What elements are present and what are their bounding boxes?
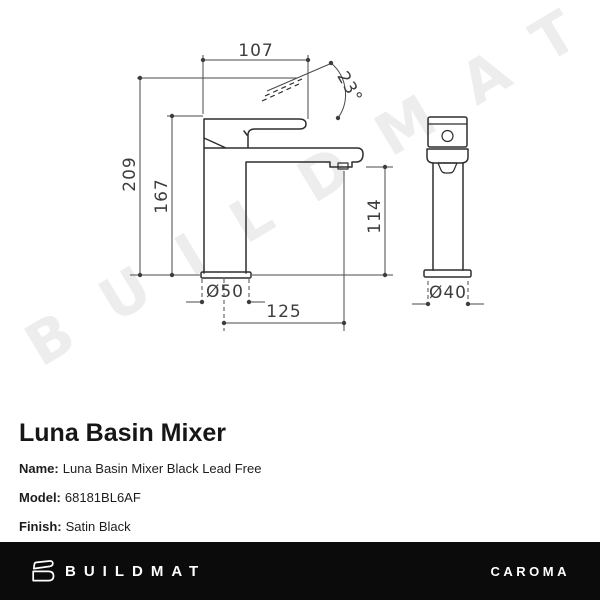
name-label: Name: [19, 461, 59, 476]
buildmat-b-icon [31, 559, 57, 583]
buildmat-wordmark: BUILDMAT [65, 563, 206, 580]
aerator [338, 163, 348, 169]
handle-button [442, 131, 453, 142]
column-side [433, 163, 463, 270]
dim-body-height: 167 [152, 178, 172, 213]
dim-spout-reach: 125 [266, 302, 301, 322]
finish-value: Satin Black [66, 519, 131, 534]
base-flange-front [201, 272, 251, 278]
name-value: Luna Basin Mixer Black Lead Free [63, 461, 262, 476]
caroma-wordmark: CAROMA [491, 564, 571, 579]
faucet-front-view [201, 119, 363, 278]
base-flange-side [424, 270, 471, 277]
dimension-lines: 107 23° 209 167 114 125 [120, 41, 484, 331]
model-value: 68181BL6AF [65, 490, 141, 505]
dim-base-diameter-front: Ø50 [206, 282, 244, 302]
spout-nose-side [438, 163, 457, 173]
dim-total-height: 209 [120, 156, 140, 191]
dim-handle-angle: 23° [332, 68, 366, 107]
buildmat-logo: BUILDMAT [31, 559, 206, 583]
faucet-front-outline [204, 119, 363, 273]
spec-sheet: BUILDMAT 107 [0, 0, 600, 600]
model-label: Model: [19, 490, 61, 505]
page-title: Luna Basin Mixer [19, 419, 261, 448]
handle-head-side [428, 117, 467, 147]
dim-outlet-height: 114 [365, 198, 385, 233]
product-finish-row: Finish:Satin Black [19, 519, 261, 534]
finish-label: Finish: [19, 519, 62, 534]
dim-handle-width: 107 [238, 41, 273, 61]
product-model-row: Model:68181BL6AF [19, 490, 261, 505]
faucet-side-view [424, 117, 471, 277]
technical-drawing: 107 23° 209 167 114 125 [0, 0, 600, 410]
body-side [427, 149, 468, 163]
dim-base-diameter-side: Ø40 [429, 283, 467, 303]
product-info: Luna Basin Mixer Name:Luna Basin Mixer B… [19, 419, 261, 548]
product-name-row: Name:Luna Basin Mixer Black Lead Free [19, 461, 261, 476]
footer-bar: BUILDMAT CAROMA [0, 542, 600, 600]
